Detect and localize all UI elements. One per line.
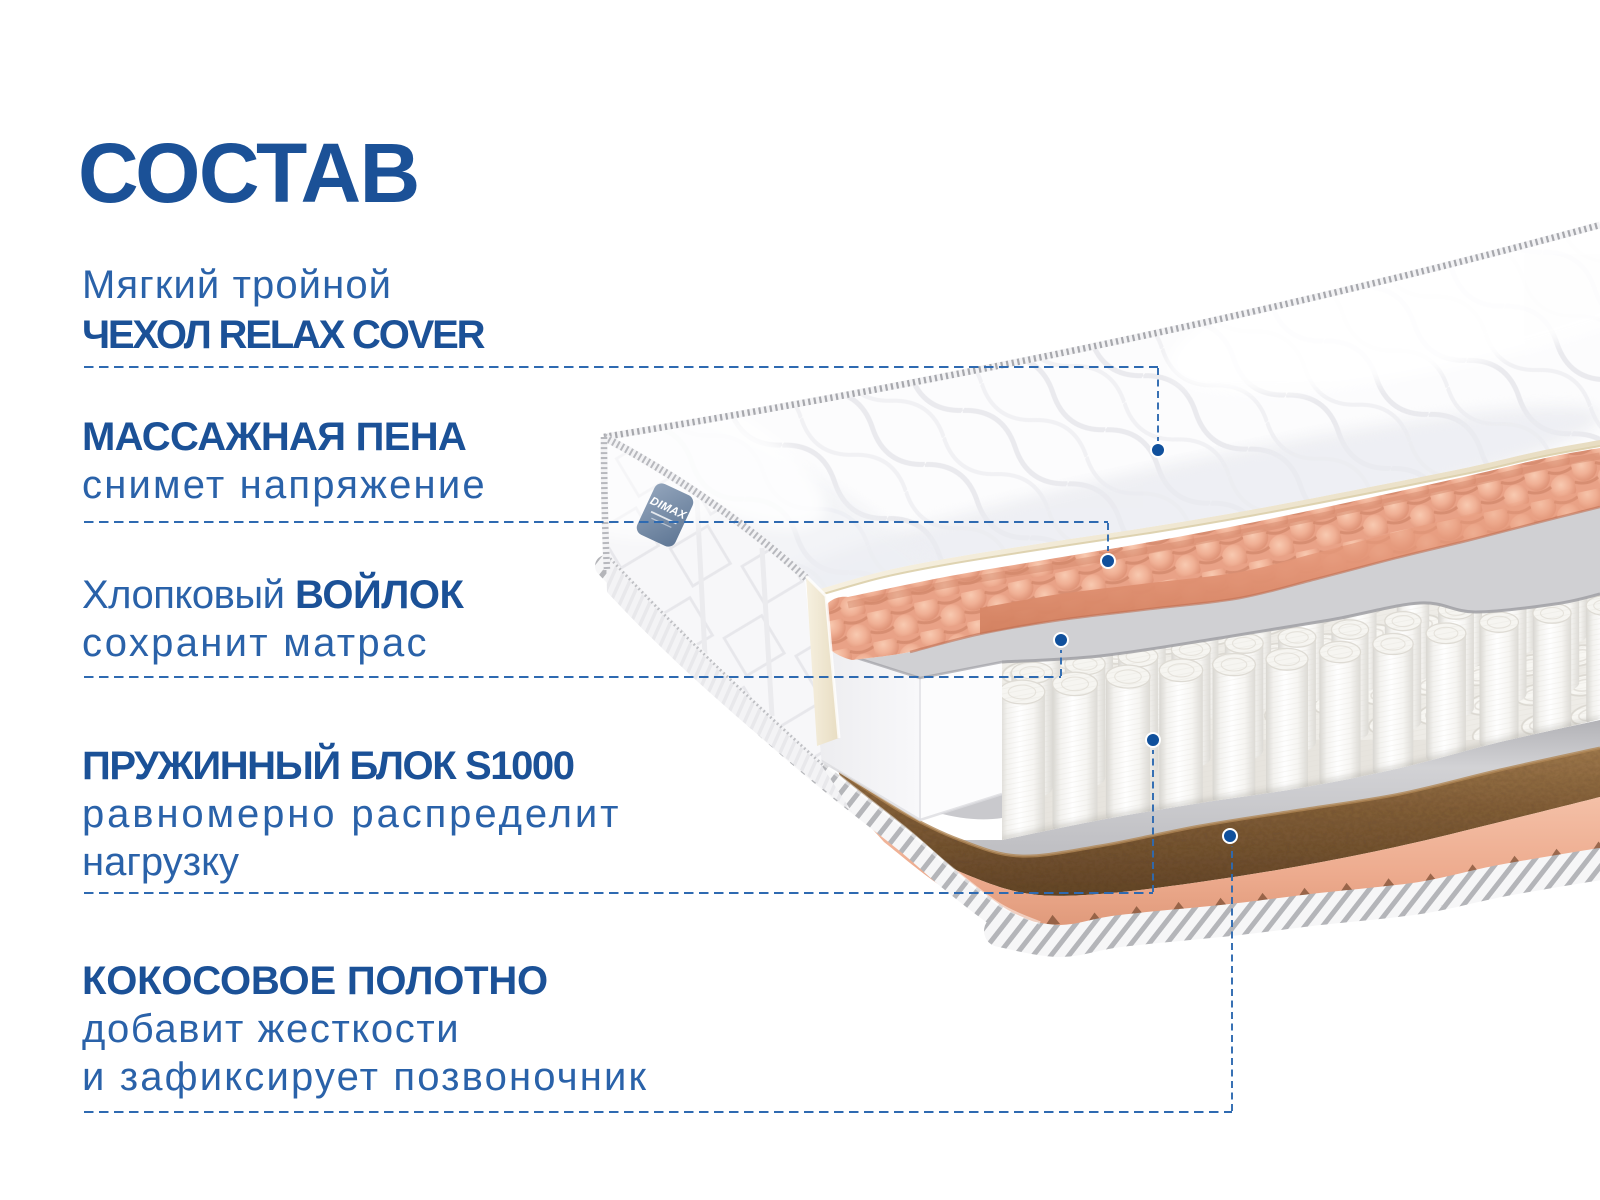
svg-text:ПРУЖИННЫЙ БЛОК S1000: ПРУЖИННЫЙ БЛОК S1000 — [82, 742, 574, 788]
svg-text:Мягкий тройной: Мягкий тройной — [82, 263, 392, 307]
svg-text:Хлопковый ВОЙЛОК: Хлопковый ВОЙЛОК — [82, 571, 464, 617]
svg-text:МАССАЖНАЯ ПЕНА: МАССАЖНАЯ ПЕНА — [82, 415, 466, 459]
svg-text:добавит жесткости: добавит жесткости — [82, 1007, 460, 1051]
svg-text:СОСТАВ: СОСТАВ — [78, 126, 419, 220]
svg-text:равномерно распределит: равномерно распределит — [82, 792, 621, 836]
svg-text:ЧЕХОЛ RELAX COVER: ЧЕХОЛ RELAX COVER — [82, 313, 486, 357]
svg-text:КОКОСОВОЕ ПОЛОТНО: КОКОСОВОЕ ПОЛОТНО — [82, 959, 548, 1003]
svg-text:снимет напряжение: снимет напряжение — [82, 463, 487, 507]
svg-text:нагрузку: нагрузку — [82, 840, 239, 884]
svg-text:сохранит матрас: сохранит матрас — [82, 621, 429, 665]
svg-text:и зафиксирует позвоночник: и зафиксирует позвоночник — [82, 1055, 648, 1099]
